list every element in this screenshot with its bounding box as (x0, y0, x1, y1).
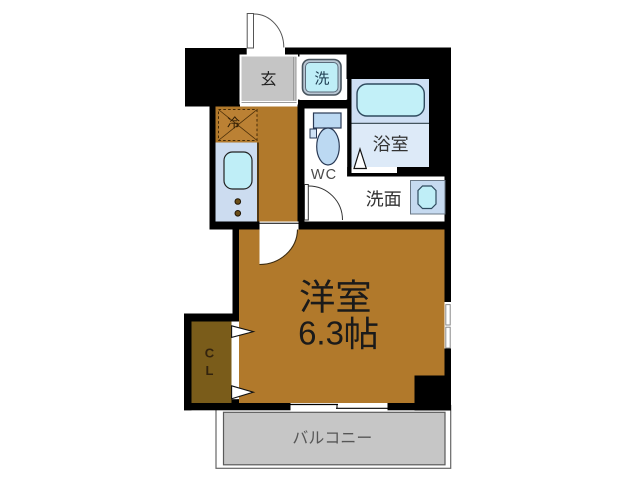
svg-text:C: C (205, 346, 215, 361)
svg-text:6.3: 6.3 (298, 314, 344, 351)
svg-text:WC: WC (311, 167, 337, 183)
svg-text:L: L (206, 363, 214, 378)
